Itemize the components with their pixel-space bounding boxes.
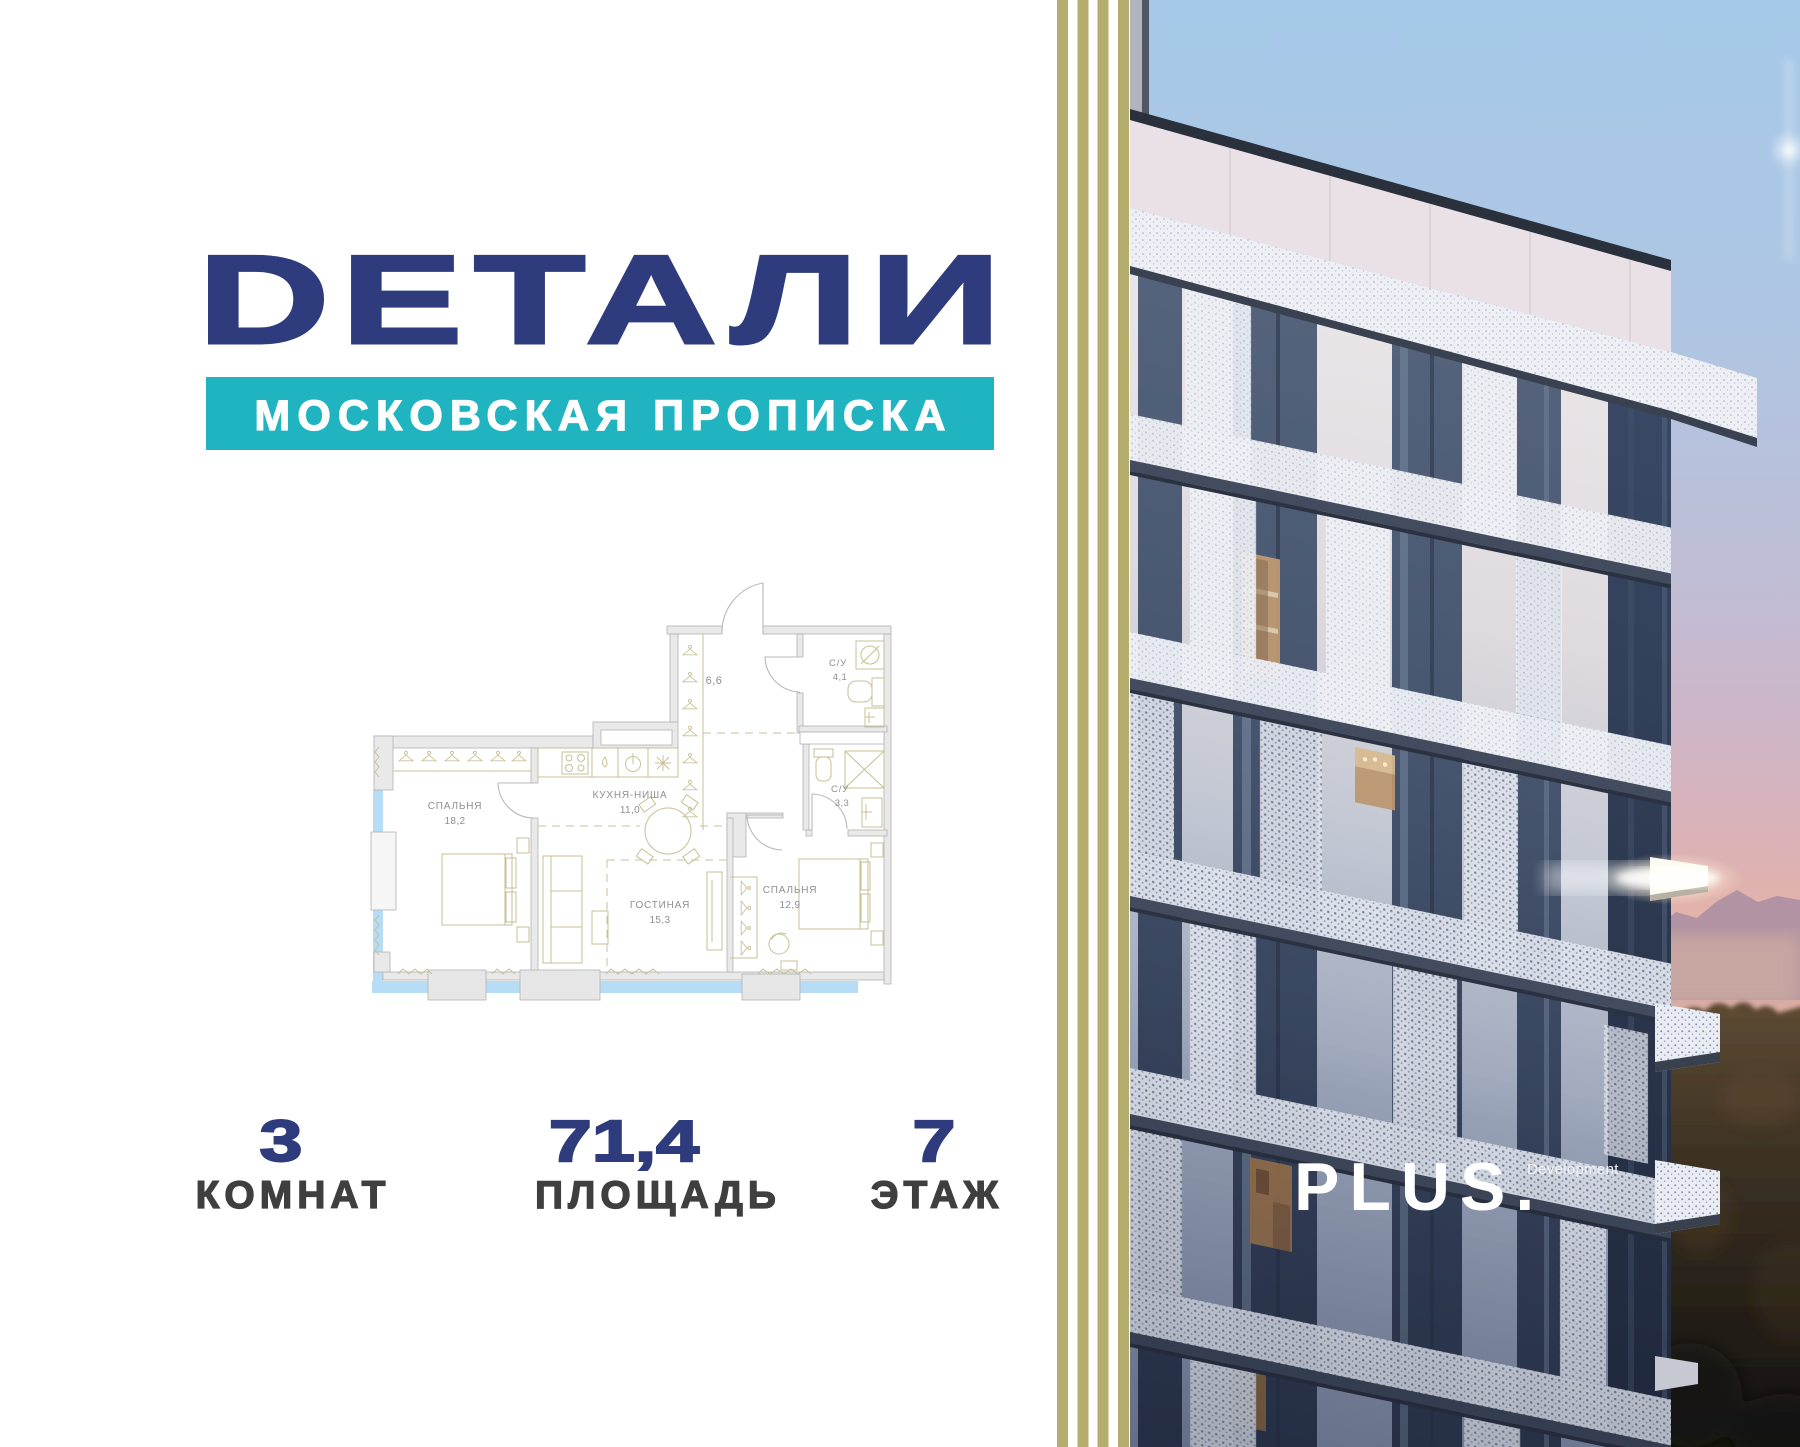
svg-text:6,6: 6,6 [706, 675, 723, 687]
svg-text:СПАЛЬНЯ: СПАЛЬНЯ [763, 885, 817, 896]
svg-text:ГОСТИНАЯ: ГОСТИНАЯ [630, 900, 690, 911]
svg-text:15,3: 15,3 [649, 915, 670, 926]
svg-text:4,1: 4,1 [833, 672, 847, 683]
svg-text:PLUS.: PLUS. [1294, 1149, 1544, 1225]
svg-text:11,0: 11,0 [620, 805, 640, 816]
svg-text:СПАЛЬНЯ: СПАЛЬНЯ [428, 801, 482, 812]
svg-text:3,3: 3,3 [835, 798, 849, 809]
svg-text:18,2: 18,2 [444, 816, 465, 827]
svg-text:Development: Development [1527, 1161, 1619, 1178]
svg-text:12,9: 12,9 [779, 900, 800, 911]
svg-text:С/У: С/У [829, 658, 847, 669]
svg-text:КУХНЯ-НИША: КУХНЯ-НИША [593, 790, 668, 801]
svg-text:С/У: С/У [831, 784, 849, 795]
